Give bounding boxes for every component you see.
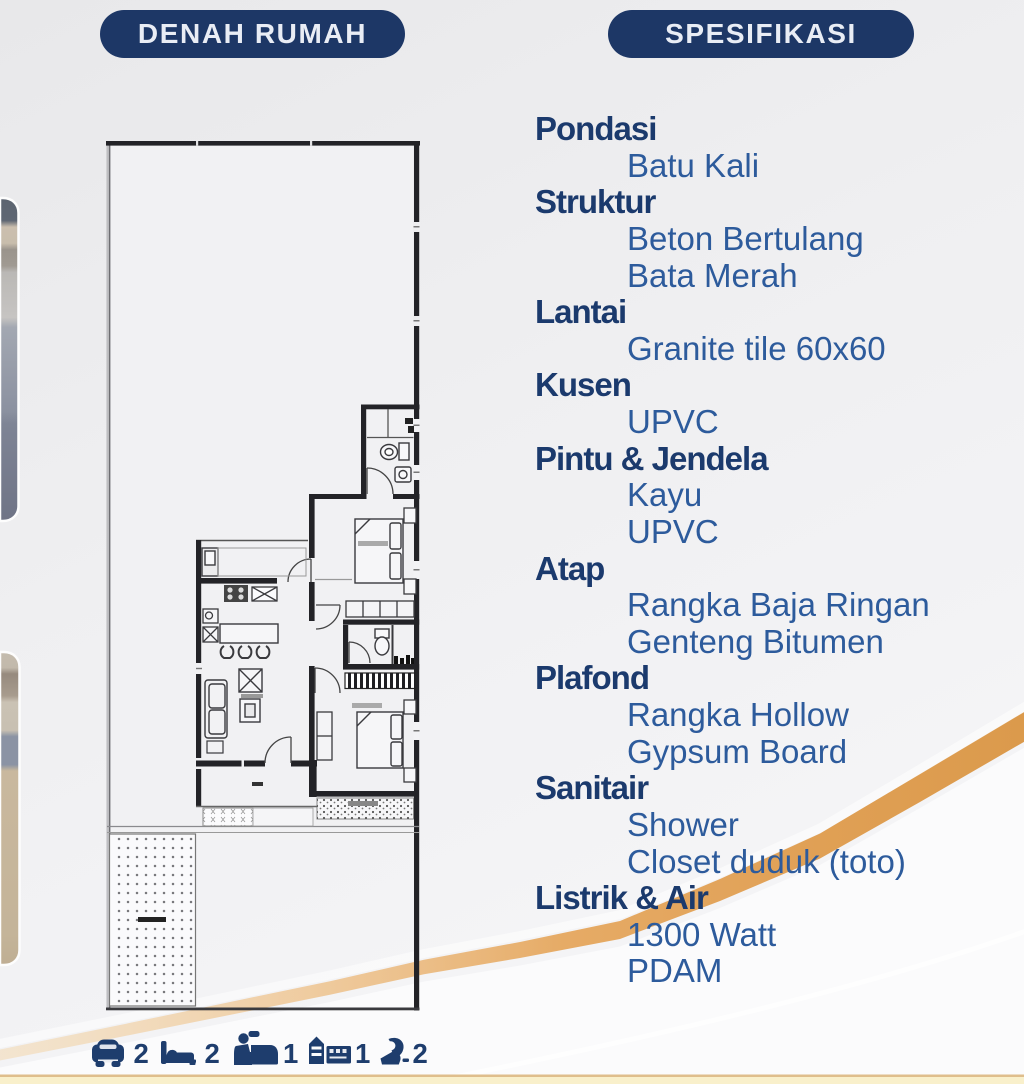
svg-text:2: 2 [413, 1038, 428, 1069]
svg-text:2: 2 [134, 1038, 149, 1069]
svg-text:1: 1 [283, 1038, 298, 1069]
svg-text:1: 1 [355, 1038, 370, 1069]
svg-text:2: 2 [205, 1038, 220, 1069]
